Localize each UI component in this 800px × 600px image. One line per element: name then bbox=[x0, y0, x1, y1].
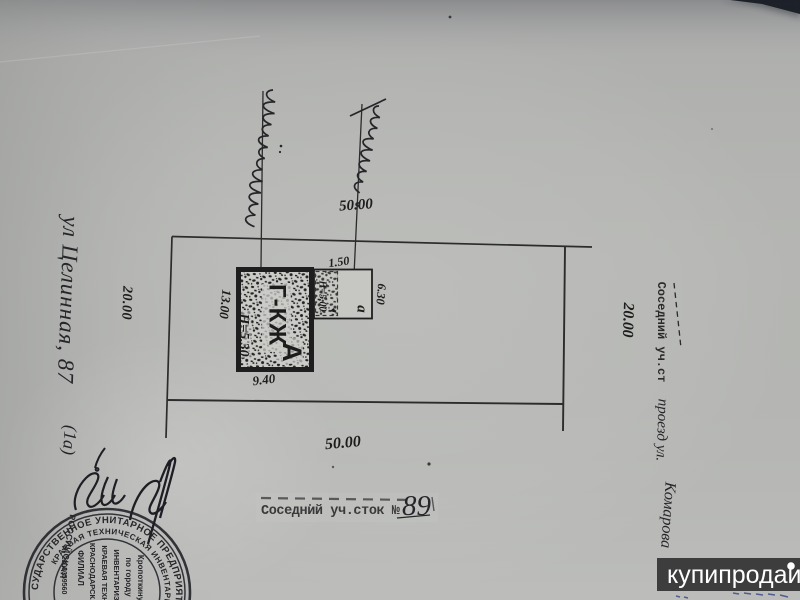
svg-text:КРАСНОДАРСК.: КРАСНОДАРСК. bbox=[88, 543, 97, 600]
svg-text:№ 2308059560: № 2308059560 bbox=[60, 546, 68, 595]
svg-text:Кропоткину: Кропоткину bbox=[136, 555, 145, 600]
svg-text:А: А bbox=[277, 342, 307, 362]
svg-text:13.00: 13.00 bbox=[216, 289, 234, 320]
svg-text:50.00: 50.00 bbox=[324, 433, 361, 453]
svg-text:Соседний уч.ст: Соседний уч.ст bbox=[654, 282, 668, 383]
svg-text:(1а): (1а) bbox=[58, 424, 81, 455]
svg-text:по городу: по городу bbox=[124, 557, 133, 597]
svg-text:Н=5,00: Н=5,00 bbox=[317, 280, 328, 312]
svg-text:ФИЛИАЛ: ФИЛИАЛ bbox=[76, 550, 85, 586]
svg-text:Соседний уч.сток №: Соседний уч.сток № bbox=[261, 504, 400, 519]
svg-text:20.00: 20.00 bbox=[619, 301, 637, 338]
svg-text:проезд ул.: проезд ул. bbox=[652, 399, 670, 462]
svg-text:а: а bbox=[354, 305, 370, 313]
svg-text:ИНВЕНТАРИЗ.: ИНВЕНТАРИЗ. bbox=[112, 549, 121, 600]
svg-text:1.50: 1.50 bbox=[327, 253, 350, 270]
svg-text:Н=5,30: Н=5,30 bbox=[236, 312, 251, 356]
svg-text:купипродаи: купипродаи bbox=[667, 561, 800, 589]
svg-text:КРАЕВАЯ ТЕХН.: КРАЕВАЯ ТЕХН. bbox=[100, 545, 109, 600]
svg-text:6.30: 6.30 bbox=[373, 283, 389, 305]
svg-text:Г-КЖ: Г-КЖ bbox=[264, 284, 291, 346]
svg-text:9.40: 9.40 bbox=[252, 371, 277, 389]
svg-text:20.00: 20.00 bbox=[118, 285, 134, 321]
